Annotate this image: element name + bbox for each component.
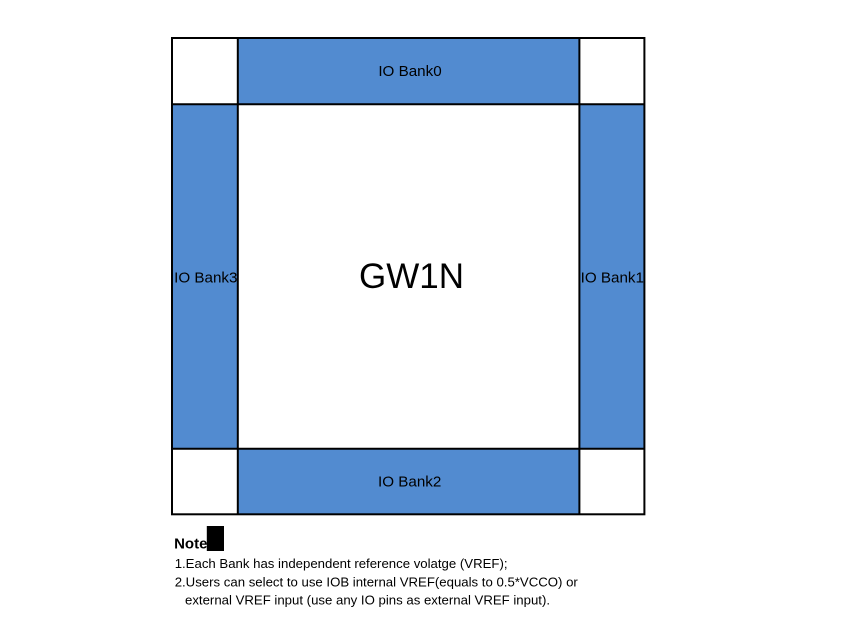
svg-text:1.Each Bank has independent re: 1.Each Bank has independent reference vo…	[175, 556, 508, 571]
svg-text:IO Bank0: IO Bank0	[378, 63, 441, 80]
svg-text:IO Bank1: IO Bank1	[581, 270, 644, 287]
svg-text:IO Bank2: IO Bank2	[378, 474, 441, 491]
svg-text:external VREF input (use any I: external VREF input (use any IO pins as …	[185, 593, 550, 608]
svg-text:GW1N: GW1N	[359, 257, 464, 296]
svg-text:2.Users can select to use IOB: 2.Users can select to use IOB internal V…	[175, 575, 579, 590]
svg-text:Note: Note	[174, 536, 207, 553]
svg-text:IO Bank3: IO Bank3	[174, 270, 237, 287]
